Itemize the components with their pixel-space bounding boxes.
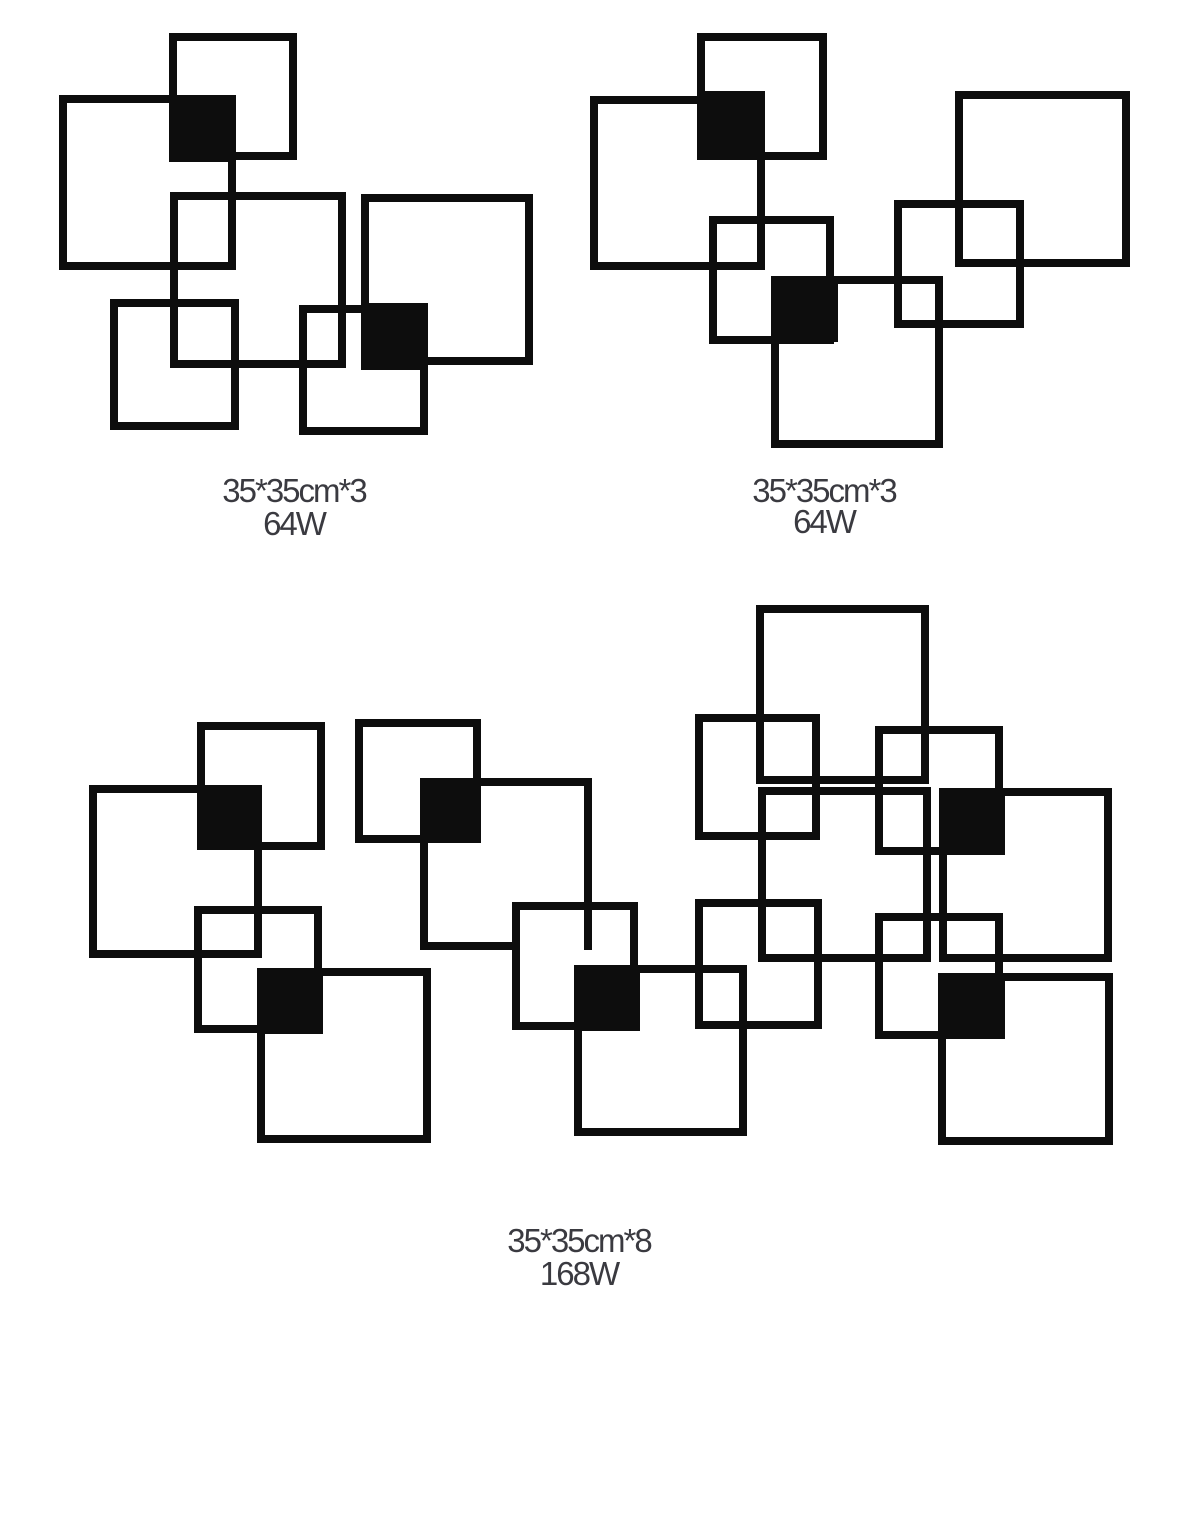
svg-text:168W: 168W	[540, 1255, 621, 1292]
svg-text:35*35cm*3: 35*35cm*3	[222, 472, 366, 509]
svg-text:64W: 64W	[263, 505, 328, 542]
svg-text:35*35cm*8: 35*35cm*8	[507, 1222, 651, 1259]
svg-text:64W: 64W	[793, 503, 858, 540]
